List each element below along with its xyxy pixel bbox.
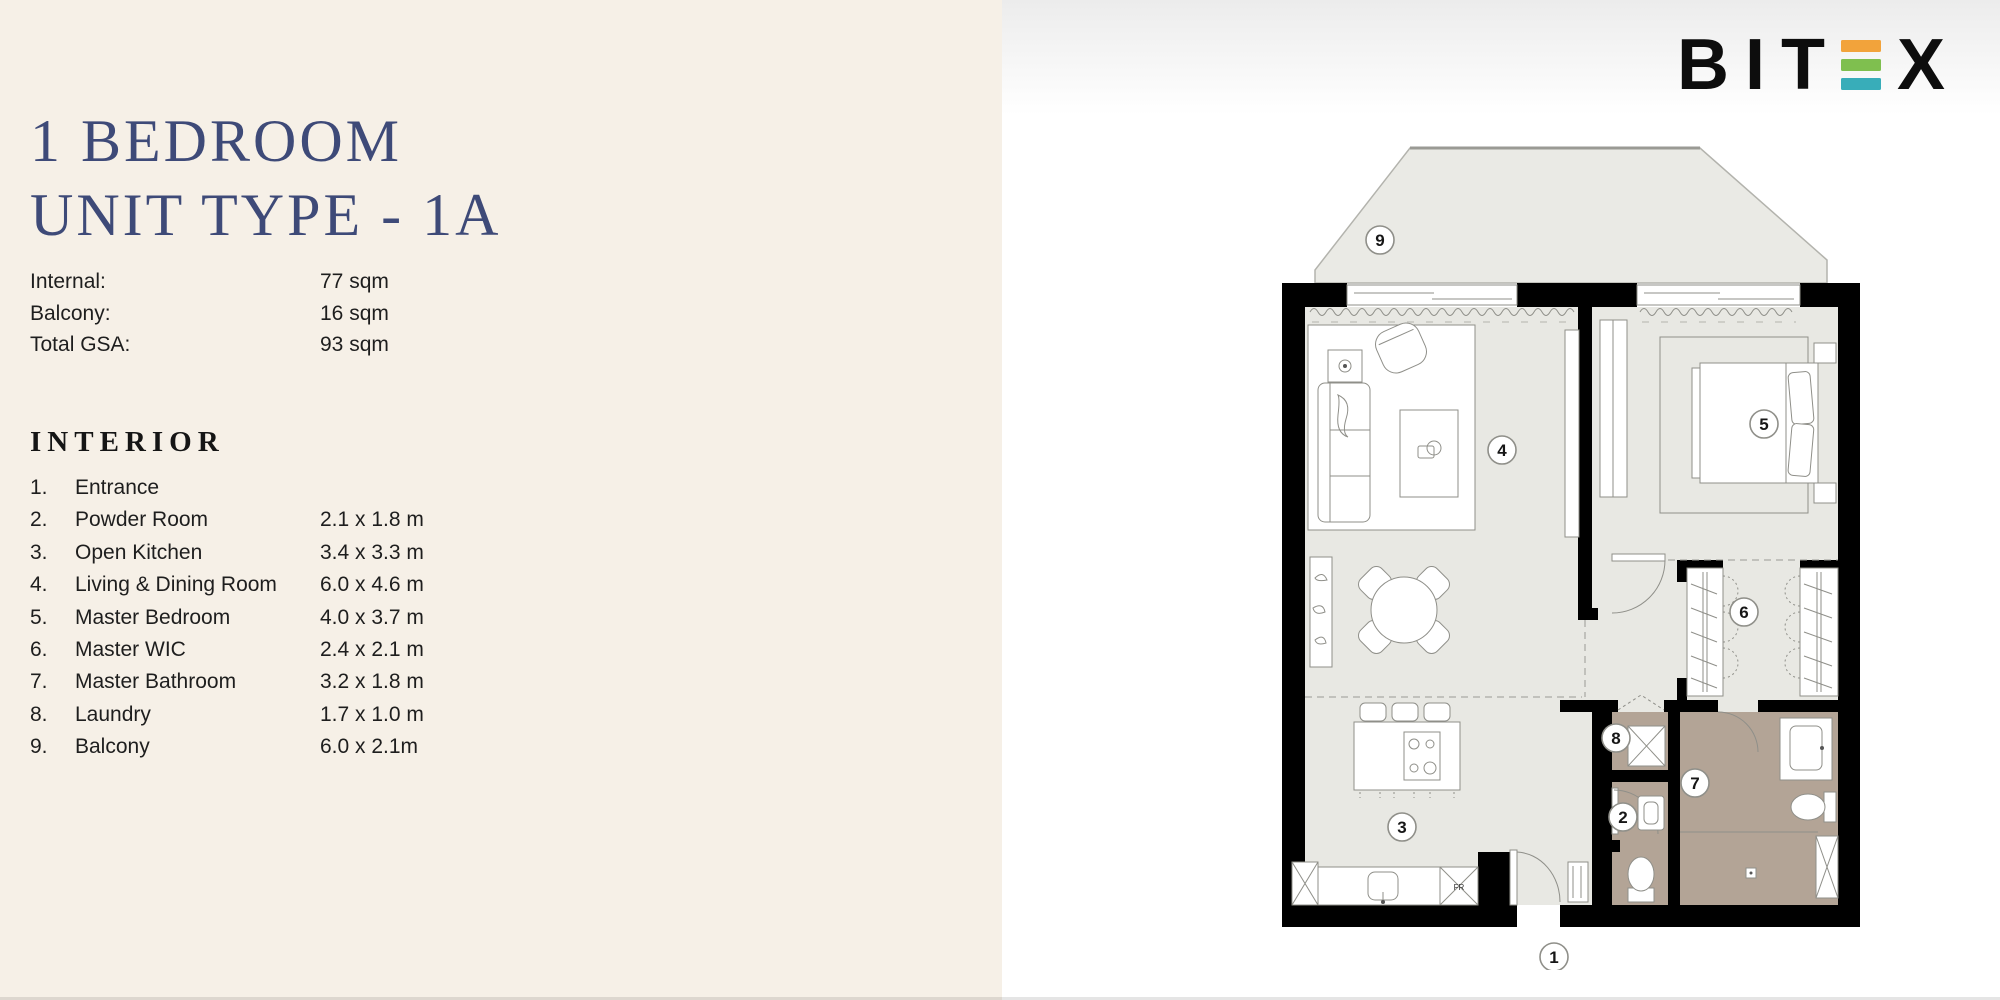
legend-name: Master Bathroom: [75, 670, 320, 694]
nightstand-top: [1814, 343, 1836, 363]
spec-value: 93 sqm: [320, 333, 389, 357]
spec-value: 16 sqm: [320, 302, 389, 326]
bed-bench: [1692, 368, 1700, 478]
wardrobe-right: [1800, 568, 1838, 696]
interior-heading: INTERIOR: [30, 426, 225, 459]
legend-number: 7.: [30, 670, 75, 694]
legend-size: 1.7 x 1.0 m: [320, 703, 424, 727]
logo-e-bars-icon: [1841, 40, 1881, 90]
room-marker-label: 5: [1759, 415, 1768, 434]
spec-row: Total GSA:93 sqm: [30, 333, 389, 365]
vanity: [1780, 718, 1832, 780]
legend-row: 5.Master Bedroom4.0 x 3.7 m: [30, 606, 424, 638]
corner-cabinet: [1292, 862, 1318, 905]
legend-row: 9.Balcony6.0 x 2.1m: [30, 735, 424, 767]
sofa: [1318, 383, 1370, 522]
legend-row: 1.Entrance: [30, 476, 424, 508]
nightstand-bottom: [1814, 483, 1836, 503]
info-panel: 1 BEDROOM UNIT TYPE - 1A Internal:77 sqm…: [0, 0, 1002, 1000]
legend-row: 3.Open Kitchen3.4 x 3.3 m: [30, 541, 424, 573]
legend-number: 2.: [30, 508, 75, 532]
room-marker-label: 6: [1739, 603, 1748, 622]
legend-number: 4.: [30, 573, 75, 597]
powder-toilet: [1628, 857, 1654, 902]
logo-letter-i: I: [1745, 39, 1765, 91]
legend-row: 8.Laundry1.7 x 1.0 m: [30, 703, 424, 735]
legend-size: 4.0 x 3.7 m: [320, 606, 424, 630]
logo-bar-top: [1841, 40, 1881, 52]
legend-size: 6.0 x 4.6 m: [320, 573, 424, 597]
title-line-2: UNIT TYPE - 1A: [30, 178, 501, 252]
spec-label: Balcony:: [30, 302, 320, 326]
legend-number: 6.: [30, 638, 75, 662]
island-stools: [1360, 703, 1450, 721]
brochure-page: 1 BEDROOM UNIT TYPE - 1A Internal:77 sqm…: [0, 0, 2000, 1000]
logo-bar-middle: [1841, 59, 1881, 71]
dining-table: [1371, 577, 1437, 643]
wardrobe-left: [1687, 568, 1723, 696]
legend-size: 6.0 x 2.1m: [320, 735, 418, 759]
entrance-door-leaf: [1510, 850, 1517, 905]
spec-label: Total GSA:: [30, 333, 320, 357]
room-marker-label: 8: [1611, 729, 1620, 748]
legend-name: Entrance: [75, 476, 320, 500]
fridge-label: FR: [1454, 883, 1465, 892]
plan-panel: B I T X: [1002, 0, 2000, 1000]
spec-row: Balcony:16 sqm: [30, 302, 389, 334]
spec-row: Internal:77 sqm: [30, 270, 389, 302]
legend-number: 8.: [30, 703, 75, 727]
tv-console: [1565, 330, 1579, 537]
legend-number: 9.: [30, 735, 75, 759]
interior-legend: 1.Entrance2.Powder Room2.1 x 1.8 m3.Open…: [30, 476, 424, 768]
legend-name: Master Bedroom: [75, 606, 320, 630]
legend-number: 5.: [30, 606, 75, 630]
legend-row: 7.Master Bathroom3.2 x 1.8 m: [30, 670, 424, 702]
bathroom-toilet: [1791, 792, 1836, 822]
area-specs: Internal:77 sqmBalcony:16 sqmTotal GSA:9…: [30, 270, 389, 365]
legend-size: 3.4 x 3.3 m: [320, 541, 424, 565]
legend-row: 2.Powder Room2.1 x 1.8 m: [30, 508, 424, 540]
legend-name: Laundry: [75, 703, 320, 727]
legend-name: Master WIC: [75, 638, 320, 662]
room-marker-label: 9: [1375, 231, 1384, 250]
balcony-room: [1315, 148, 1827, 283]
legend-name: Powder Room: [75, 508, 320, 532]
logo-letter-b: B: [1677, 39, 1729, 91]
legend-size: 2.4 x 2.1 m: [320, 638, 424, 662]
title-line-1: 1 BEDROOM: [30, 104, 501, 178]
utility-box: [1568, 862, 1588, 902]
room-marker-label: 2: [1618, 808, 1627, 827]
legend-size: 3.2 x 1.8 m: [320, 670, 424, 694]
fridge: FR: [1440, 867, 1478, 905]
legend-name: Open Kitchen: [75, 541, 320, 565]
stove: [1404, 732, 1440, 780]
bitex-logo: B I T X: [1677, 38, 1945, 92]
room-marker-label: 3: [1397, 818, 1406, 837]
room-marker-label: 1: [1549, 948, 1558, 967]
room-marker-label: 4: [1497, 441, 1507, 460]
logo-bar-bottom: [1841, 78, 1881, 90]
room-marker-label: 7: [1690, 774, 1699, 793]
window-bedroom: [1637, 285, 1800, 305]
window-living: [1347, 285, 1517, 305]
legend-number: 1.: [30, 476, 75, 500]
dining-shelf: [1310, 557, 1332, 667]
legend-number: 3.: [30, 541, 75, 565]
powder-sink: [1638, 796, 1664, 830]
legend-size: 2.1 x 1.8 m: [320, 508, 424, 532]
dining-area: [1310, 557, 1453, 667]
logo-letter-t: T: [1781, 39, 1825, 91]
spec-value: 77 sqm: [320, 270, 389, 294]
shower-glass: [1816, 836, 1838, 898]
page-title: 1 BEDROOM UNIT TYPE - 1A: [30, 104, 501, 252]
floor-plan: FR: [1282, 140, 1862, 970]
spec-label: Internal:: [30, 270, 320, 294]
legend-name: Living & Dining Room: [75, 573, 320, 597]
legend-row: 6.Master WIC2.4 x 2.1 m: [30, 638, 424, 670]
legend-name: Balcony: [75, 735, 320, 759]
logo-letter-x: X: [1897, 39, 1945, 91]
legend-row: 4.Living & Dining Room6.0 x 4.6 m: [30, 573, 424, 605]
